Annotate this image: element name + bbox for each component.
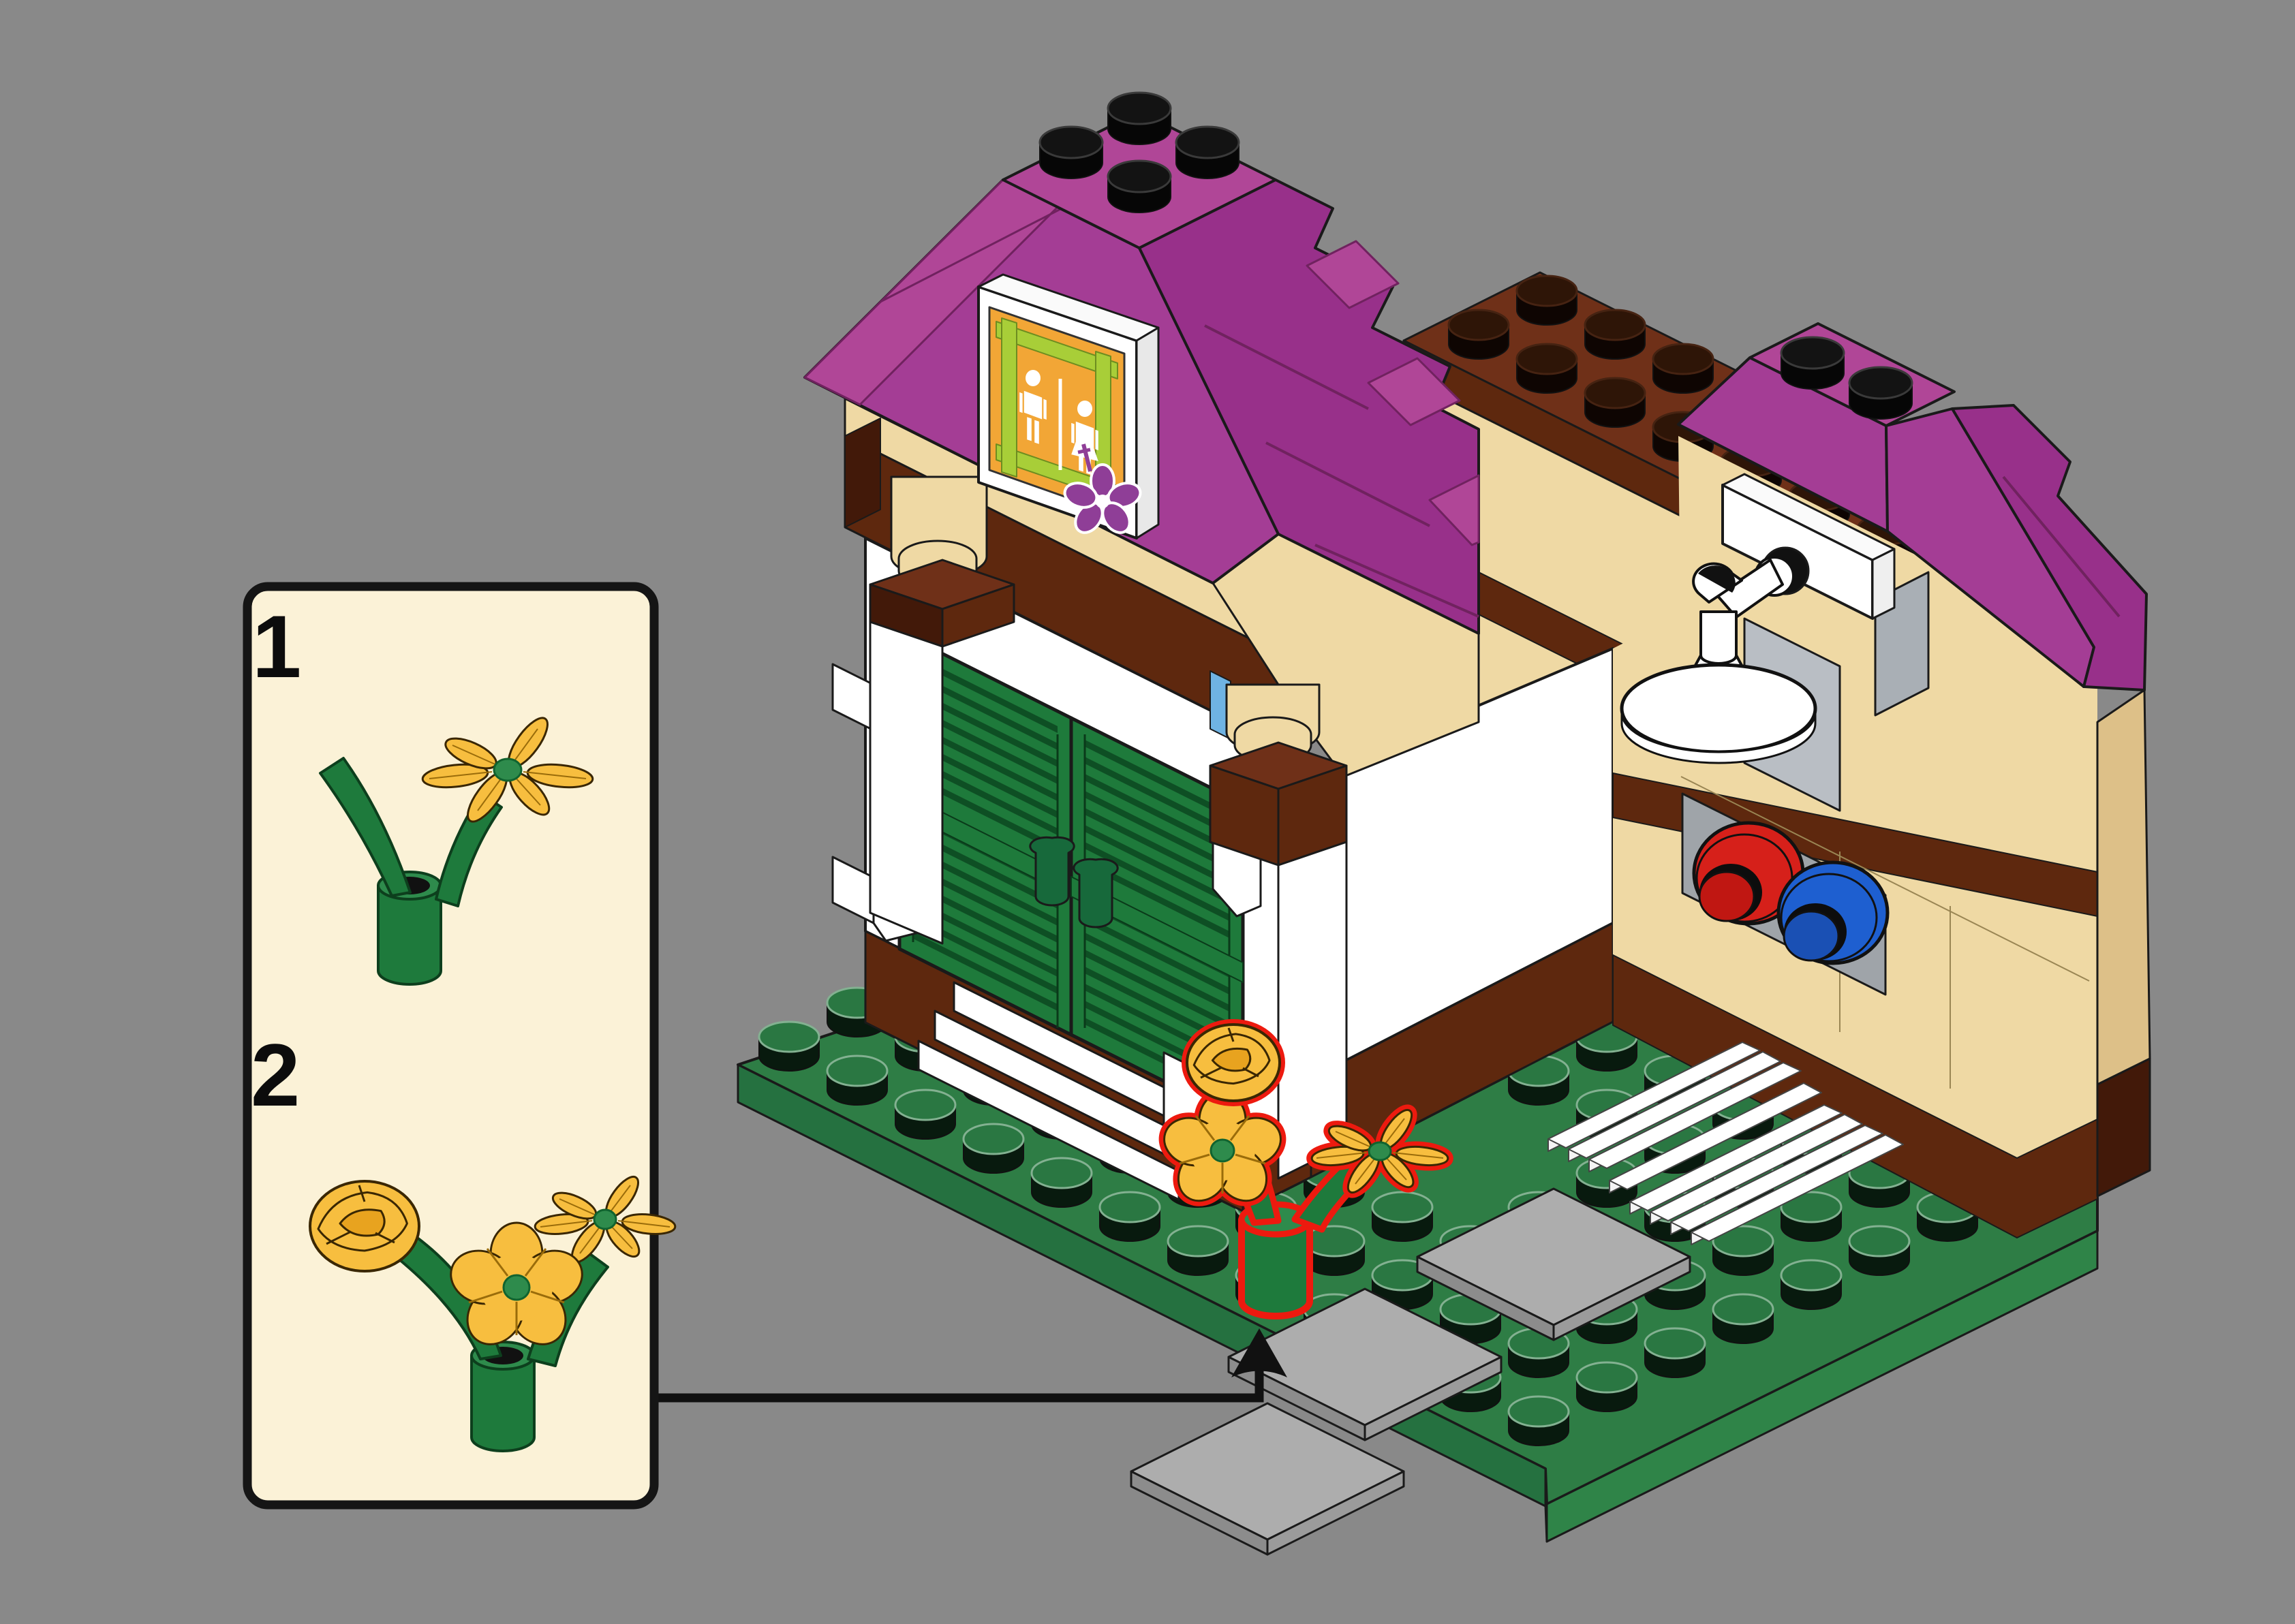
svg-text:1: 1 — [252, 597, 301, 696]
svg-text:2: 2 — [251, 1025, 300, 1125]
